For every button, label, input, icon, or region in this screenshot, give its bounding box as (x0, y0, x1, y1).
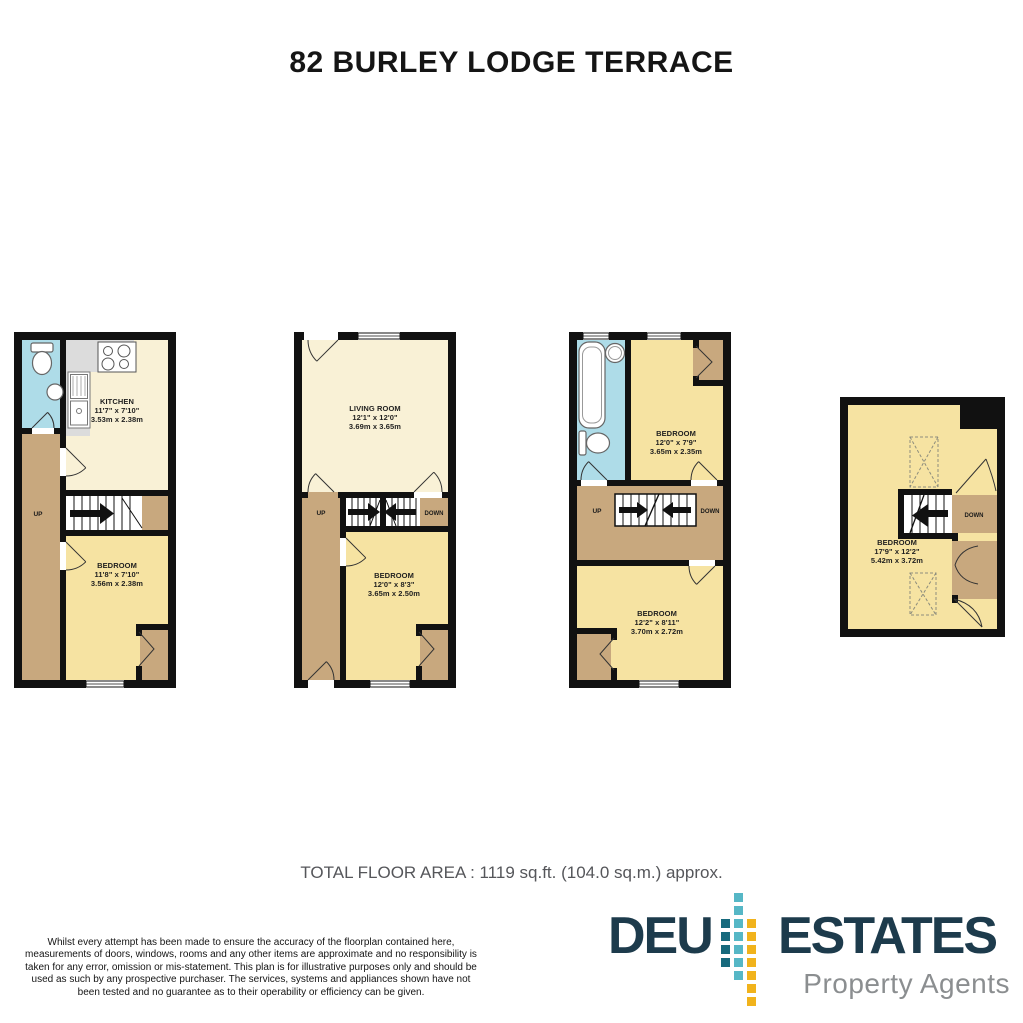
stair-direction-label: UP (592, 508, 602, 515)
room-size-metric: 3.65m x 2.35m (621, 447, 731, 456)
room-size-imperial: 17'9" x 12'2" (844, 547, 950, 556)
toilet-icon (31, 343, 53, 375)
logo-square (747, 945, 756, 954)
room-name: KITCHEN (62, 397, 172, 406)
room-label-living-room: LIVING ROOM 12'1" x 12'0" 3.69m x 3.65m (320, 404, 430, 431)
bathtub-icon (579, 342, 605, 428)
room-size-metric: 3.70m x 2.72m (602, 627, 712, 636)
logo-square (747, 919, 756, 928)
floorplan-second-floor: UP DOWN (569, 332, 731, 688)
stair-direction-label: DOWN (701, 509, 720, 515)
room-name: BEDROOM (621, 429, 731, 438)
toilet-icon (579, 431, 610, 455)
ground-floor-drawing: UP (14, 332, 176, 688)
floorplan-first-floor: UP DOWN LIVING ROOM 12'1" x 12'0" 3.69m … (294, 332, 456, 688)
disclaimer-text: Whilst every attempt has been made to en… (22, 937, 480, 999)
room-label-bedroom: BEDROOM 11'8" x 7'10" 3.56m x 2.38m (62, 561, 172, 588)
logo-squares-icon (721, 893, 757, 1013)
logo-square (747, 932, 756, 941)
room-size-imperial: 12'0" x 8'3" (339, 580, 449, 589)
attic-drawing: DOWN (840, 397, 1005, 637)
logo-square (734, 945, 743, 954)
room-size-imperial: 11'8" x 7'10" (62, 570, 172, 579)
stair-direction-label: UP (33, 511, 43, 518)
room-size-metric: 3.65m x 2.50m (339, 589, 449, 598)
room-size-metric: 5.42m x 3.72m (844, 556, 950, 565)
logo-square (747, 958, 756, 967)
logo-word-deu: DEU (608, 910, 712, 962)
logo-square (721, 958, 730, 967)
room-label-bedroom: BEDROOM 12'0" x 8'3" 3.65m x 2.50m (339, 571, 449, 598)
room-size-imperial: 12'2" x 8'11" (602, 618, 712, 627)
stair-direction-label: UP (316, 510, 326, 517)
room-size-imperial: 12'1" x 12'0" (320, 413, 430, 422)
room-size-metric: 3.69m x 3.65m (320, 422, 430, 431)
logo-square (734, 919, 743, 928)
logo-tagline: Property Agents (803, 970, 1010, 998)
room-label-kitchen: KITCHEN 11'7" x 7'10" 3.53m x 2.38m (62, 397, 172, 424)
logo-square (734, 932, 743, 941)
room-size-imperial: 12'0" x 7'9" (621, 438, 731, 447)
page-title: 82 BURLEY LODGE TERRACE (0, 46, 1023, 80)
logo-square (734, 958, 743, 967)
logo-square (721, 932, 730, 941)
stair-landing (142, 496, 168, 530)
hob-icon (98, 342, 136, 372)
hallway-area (302, 492, 340, 680)
stair-direction-label: DOWN (965, 513, 984, 519)
logo-square (734, 906, 743, 915)
room-label-bedroom: BEDROOM 12'0" x 7'9" 3.65m x 2.35m (621, 429, 731, 456)
window (86, 681, 124, 687)
floorplan-ground-floor: UP (14, 332, 176, 688)
closet-area (952, 541, 997, 599)
room-name: BEDROOM (339, 571, 449, 580)
hallway-area (22, 434, 60, 680)
logo-square (747, 997, 756, 1006)
floorplan-page: 82 BURLEY LODGE TERRACE (0, 0, 1023, 1023)
room-size-imperial: 11'7" x 7'10" (62, 406, 172, 415)
first-floor-drawing: UP DOWN (294, 332, 456, 688)
logo-square (721, 919, 730, 928)
stair-direction-label: DOWN (425, 511, 444, 517)
total-floor-area: TOTAL FLOOR AREA : 1119 sq.ft. (104.0 sq… (0, 863, 1023, 883)
room-name: BEDROOM (62, 561, 172, 570)
closet-area (577, 634, 611, 680)
room-name: LIVING ROOM (320, 404, 430, 413)
logo-word-estates: ESTATES (778, 910, 996, 962)
logo-square (721, 945, 730, 954)
room-label-bedroom: BEDROOM 17'9" x 12'2" 5.42m x 3.72m (844, 538, 950, 565)
room-size-metric: 3.56m x 2.38m (62, 579, 172, 588)
logo-square (734, 971, 743, 980)
floorplan-attic: DOWN BEDROOM 17'9" x 12'2" 5.42m x 3.72m (840, 397, 1005, 637)
room-name: BEDROOM (602, 609, 712, 618)
logo-square (747, 971, 756, 980)
agency-logo: DEU ESTATES Property Agents (608, 890, 1010, 1014)
basin-icon (606, 344, 625, 363)
room-name: BEDROOM (844, 538, 950, 547)
basin-icon (47, 384, 63, 400)
logo-square (734, 893, 743, 902)
logo-square (747, 984, 756, 993)
room-size-metric: 3.53m x 2.38m (62, 415, 172, 424)
room-label-bedroom: BEDROOM 12'2" x 8'11" 3.70m x 2.72m (602, 609, 712, 636)
